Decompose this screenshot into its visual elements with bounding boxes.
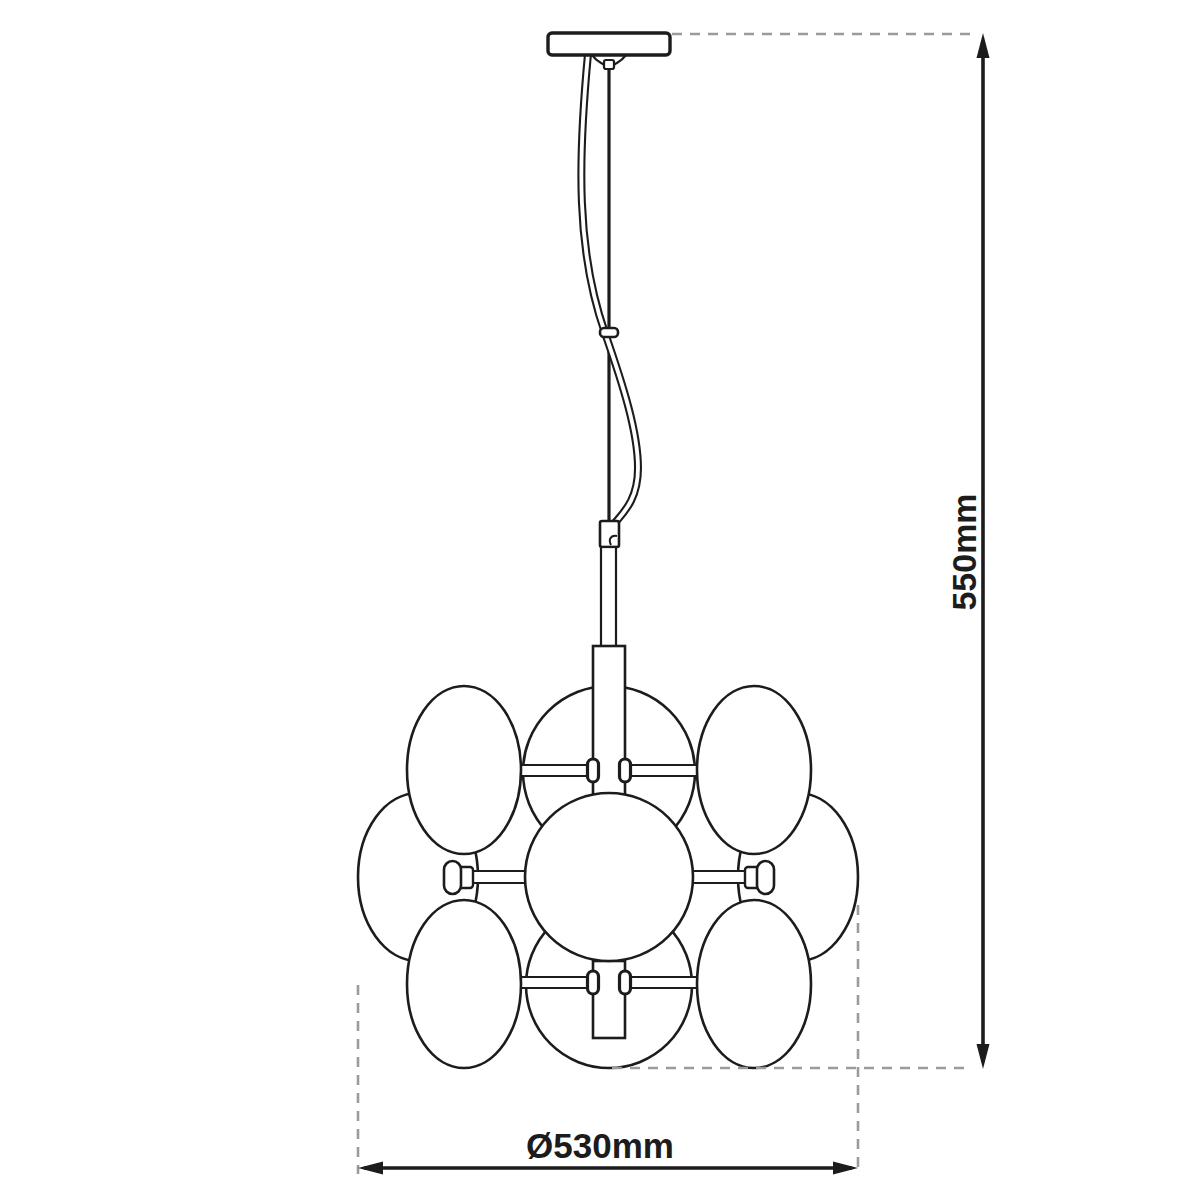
arm-socket-lower-right xyxy=(620,971,631,994)
globe-upper-left xyxy=(407,686,521,854)
stem-tube xyxy=(601,547,616,648)
globe-upper-right xyxy=(697,686,811,854)
arrow-up-icon xyxy=(977,33,990,58)
arm-socket-lower-left xyxy=(588,971,599,994)
arm-lower-right xyxy=(625,977,705,988)
ceiling-canopy xyxy=(548,33,670,55)
pendant-lamp-diagram: 550mm Ø530mm xyxy=(0,0,1200,1200)
arm-socket-upper-right xyxy=(620,759,631,782)
cord-clamp xyxy=(600,328,618,337)
dimension-drawing-canvas: 550mm Ø530mm xyxy=(0,0,1200,1200)
suspension-assembly xyxy=(548,33,670,648)
strain-relief-nipple xyxy=(604,60,614,69)
globe-lower-left xyxy=(407,900,521,1068)
arm-mid-left xyxy=(470,871,532,883)
diameter-dimension-label: Ø530mm xyxy=(526,1126,674,1165)
arrow-left-icon xyxy=(358,1162,383,1175)
arm-socket-upper-left xyxy=(588,759,599,782)
arm-upper-right xyxy=(625,765,705,776)
knob-cap-mid-right xyxy=(757,861,774,894)
arrow-right-icon xyxy=(833,1162,858,1175)
arm-lower-left xyxy=(514,977,593,988)
arrow-down-icon xyxy=(977,1044,990,1069)
globe-center-front xyxy=(525,793,693,961)
height-dimension-label: 550mm xyxy=(945,493,983,610)
arm-upper-left xyxy=(514,765,593,776)
knob-cap-mid-left xyxy=(444,861,461,894)
arm-mid-right xyxy=(686,871,748,883)
globe-cluster xyxy=(358,646,858,1068)
globe-lower-right xyxy=(697,900,811,1068)
